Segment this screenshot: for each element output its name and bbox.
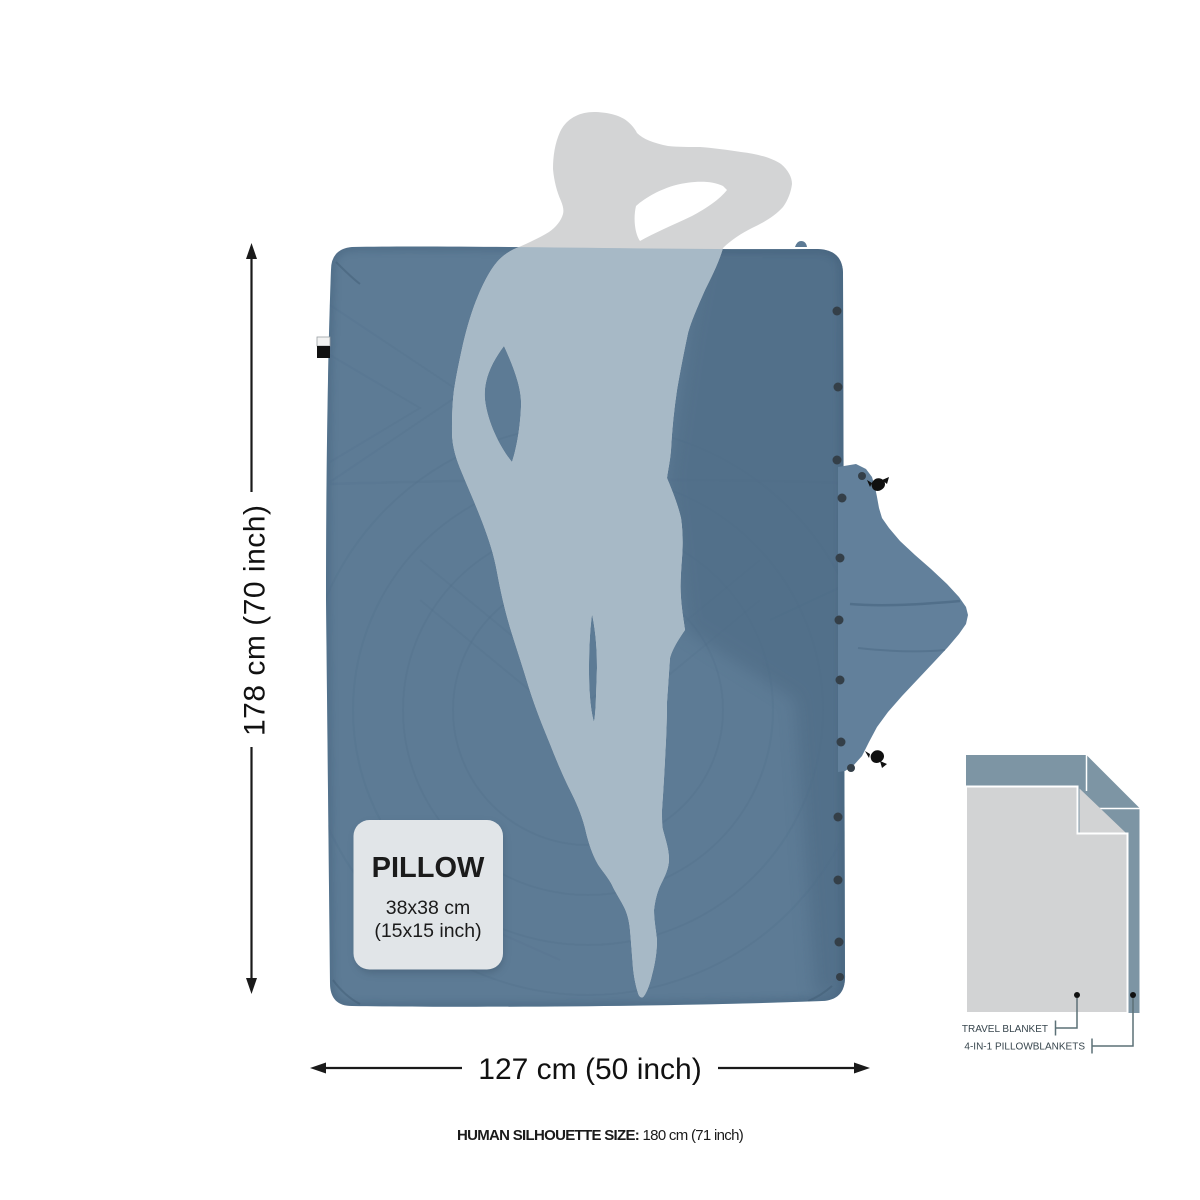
- svg-text:PILLOW: PILLOW: [372, 852, 485, 884]
- svg-text:38x38 cm: 38x38 cm: [386, 897, 471, 919]
- svg-text:(15x15 inch): (15x15 inch): [374, 920, 481, 942]
- svg-text:HUMAN SILHOUETTE SIZE: 180 cm: HUMAN SILHOUETTE SIZE: 180 cm (71 inch): [457, 1127, 744, 1144]
- svg-text:127 cm (50 inch): 127 cm (50 inch): [478, 1053, 701, 1086]
- svg-text:178 cm (70 inch): 178 cm (70 inch): [239, 505, 272, 736]
- svg-text:4-IN-1 PILLOWBLANKETS: 4-IN-1 PILLOWBLANKETS: [964, 1042, 1085, 1053]
- svg-text:TRAVEL BLANKET: TRAVEL BLANKET: [962, 1024, 1048, 1035]
